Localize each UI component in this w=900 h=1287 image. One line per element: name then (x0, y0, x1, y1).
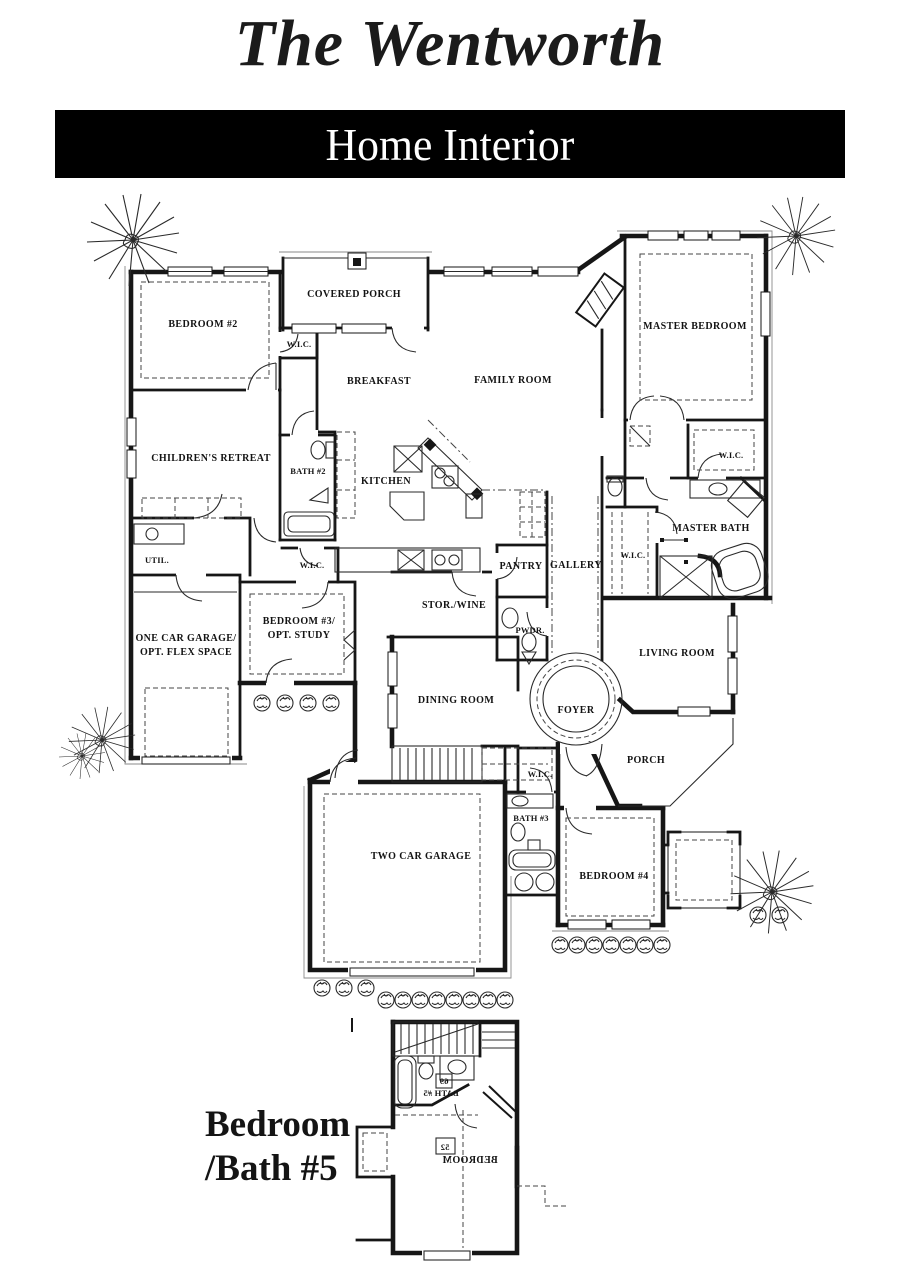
sink-icon (310, 488, 328, 503)
water-heater-icon (536, 873, 554, 891)
master-bath-fixtures (607, 426, 772, 603)
shrub-icon (497, 992, 513, 1008)
toilet-icon (522, 633, 536, 651)
room-label-wic-bath3: W.I.C. (528, 769, 553, 779)
shrub-icon (300, 695, 316, 711)
room-label-bedroom3-1: BEDROOM #3/ (263, 616, 335, 627)
room-label-wic-master-upper: W.I.C. (719, 450, 744, 460)
room-label-pantry: PANTRY (500, 561, 543, 572)
sink-icon (512, 796, 528, 806)
room-label-family-room: FAMILY ROOM (474, 375, 552, 386)
room-label-util: UTIL. (145, 555, 169, 565)
room-label-master-bedroom: MASTER BEDROOM (643, 321, 747, 332)
shrub-icon (429, 992, 445, 1008)
room-label-wic-master: W.I.C. (621, 550, 646, 560)
fireplace (576, 274, 624, 327)
tub-icon (707, 539, 772, 603)
room-label-breakfast: BREAKFAST (347, 376, 411, 387)
foyer-rotunda (530, 653, 622, 745)
bath3-fixtures (507, 794, 555, 891)
windows (127, 231, 770, 929)
bay-structure (663, 832, 740, 908)
room-label-bedroom5: BEDROOM (442, 1155, 498, 1166)
shrub-icon (323, 695, 339, 711)
lower-plan: 69 52 BATH #5 BEDROOM (352, 1018, 567, 1260)
room-label-bath5: BATH #5 (423, 1088, 458, 1098)
room-label-wic-bedroom2: W.I.C. (287, 339, 312, 349)
shrub-icon (586, 937, 602, 953)
shrub-icon (412, 992, 428, 1008)
tree-icon (731, 851, 814, 934)
floor-plan-page: The Wentworth Home Interior Bedroom /Bat… (0, 0, 900, 1287)
room-label-bedroom4: BEDROOM #4 (579, 871, 648, 882)
kitchen-fixtures (335, 432, 545, 572)
shrub-icon (446, 992, 462, 1008)
tree-icon (757, 197, 835, 275)
room-label-one-car-garage-1: ONE CAR GARAGE/ (135, 633, 236, 644)
shrub-icon (336, 980, 352, 996)
room-label-pwdr: PWDR. (515, 625, 544, 635)
room-label-living-room: LIVING ROOM (639, 648, 715, 659)
water-heater-icon (515, 873, 533, 891)
shrub-icon (463, 992, 479, 1008)
room-label-wic-hall: W.I.C. (300, 560, 325, 570)
covered-porch-structure (283, 253, 428, 269)
room-label-master-bath: MASTER BATH (672, 523, 749, 534)
room-label-two-car-garage: TWO CAR GARAGE (371, 851, 472, 862)
bath2-fixtures (284, 441, 334, 536)
shrub-icon (654, 937, 670, 953)
shrub-icon (637, 937, 653, 953)
room-label-porch: PORCH (627, 755, 665, 766)
shrub-icon (552, 937, 568, 953)
shrub-icon (603, 937, 619, 953)
porch-post (353, 258, 361, 266)
room-label-childrens-retreat: CHILDREN'S RETREAT (151, 453, 271, 464)
tub-icon (394, 1056, 416, 1108)
room-label-bedroom3-2: OPT. STUDY (268, 630, 331, 641)
toilet-icon (311, 441, 325, 459)
room-label-gallery: GALLERY (550, 560, 602, 571)
shrub-icon (314, 980, 330, 996)
room-label-kitchen: KITCHEN (361, 476, 411, 487)
room-label-bath3: BATH #3 (513, 813, 548, 823)
shrub-icon (254, 695, 270, 711)
room-label-bedroom2: BEDROOM #2 (168, 319, 237, 330)
room-label-one-car-garage-2: OPT. FLEX SPACE (140, 647, 232, 658)
bedroom5-tag: 52 (441, 1142, 450, 1152)
bath5-fixtures (394, 1056, 474, 1108)
shrub-icon (620, 937, 636, 953)
shrub-icon (358, 980, 374, 996)
room-label-stor-wine: STOR./WINE (422, 600, 486, 611)
corner-cabinet (394, 446, 422, 472)
sink-icon (146, 528, 158, 540)
bath5-tag: 69 (440, 1076, 449, 1086)
shrub-icon (569, 937, 585, 953)
shrub-icon (277, 695, 293, 711)
room-label-bath2: BATH #2 (290, 466, 325, 476)
room-label-covered-porch: COVERED PORCH (307, 289, 401, 300)
sink-icon (709, 483, 727, 495)
shrub-icon (772, 907, 788, 923)
toilet-icon (511, 823, 525, 841)
room-label-foyer: FOYER (558, 705, 595, 716)
sink-icon (448, 1060, 466, 1074)
gallery-ceiling-lines (428, 420, 598, 654)
room-label-dining-room: DINING ROOM (418, 695, 495, 706)
shrub-icon (378, 992, 394, 1008)
shrub-icon (480, 992, 496, 1008)
toilet-icon (608, 478, 622, 496)
toilet-icon (419, 1063, 433, 1079)
shrub-icon (395, 992, 411, 1008)
floor-plan-drawing: 69 52 BATH #5 BEDROOM COVERED PORCH BEDR… (0, 0, 900, 1287)
door-gaps (176, 323, 726, 813)
